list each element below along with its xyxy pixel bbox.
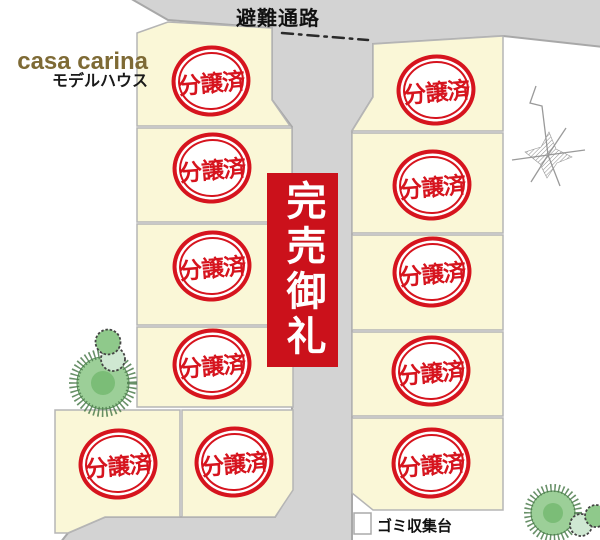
sold-out-banner: 完売御礼 — [267, 173, 338, 367]
stamp-label: 分譲済 — [178, 148, 247, 188]
stamp-label: 分譲済 — [177, 61, 246, 101]
evacuation-route-label: 避難通路 — [236, 2, 320, 31]
stamp-label: 分譲済 — [200, 442, 269, 482]
stamp-label: 分譲済 — [398, 165, 467, 205]
stamp-label: 分譲済 — [397, 351, 466, 391]
tree-cluster-right — [528, 488, 600, 538]
garbage-station-marker — [354, 513, 371, 534]
stamp-label: 分譲済 — [398, 252, 467, 292]
stamp-label: 分譲済 — [84, 444, 153, 484]
tree-cluster-left — [74, 330, 132, 413]
stamp-label: 分譲済 — [178, 246, 247, 286]
brand-logo: casa carina モデルハウス — [6, 49, 148, 91]
stamp-label: 分譲済 — [397, 443, 466, 483]
sold-out-banner-text: 完売御礼 — [283, 180, 323, 360]
brand-subtitle: モデルハウス — [6, 74, 148, 91]
brand-name: casa carina — [6, 49, 148, 74]
stamp-label: 分譲済 — [402, 70, 471, 110]
stamp-label: 分譲済 — [178, 344, 247, 384]
site-plan: 完売御礼 分譲済 分譲済 分譲済 分譲済 分譲済 分譲済 分譲済 分譲済 分譲済… — [0, 0, 600, 540]
garbage-station-label: ゴミ収集台 — [377, 515, 452, 536]
survey-point-icon — [512, 86, 585, 186]
